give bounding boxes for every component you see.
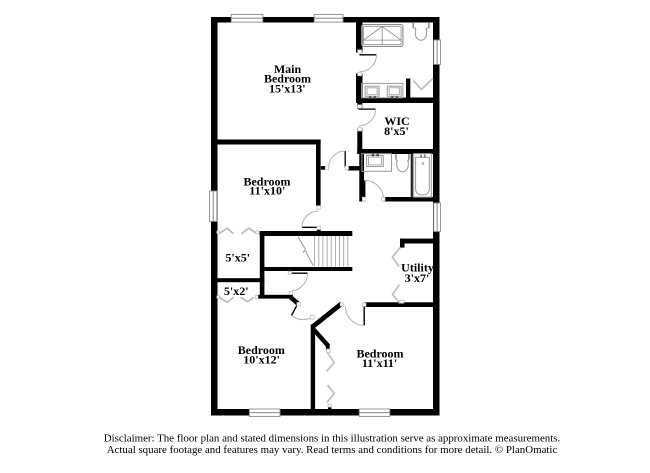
svg-text:10'x12': 10'x12' [243,353,280,367]
svg-text:3'x7': 3'x7' [405,271,430,285]
svg-text:5'x5': 5'x5' [225,250,250,264]
svg-text:Actual square footage and feat: Actual square footage and features may v… [107,444,558,456]
svg-text:Disclaimer: The floor plan and: Disclaimer: The floor plan and stated di… [104,432,561,444]
svg-text:5'x2': 5'x2' [224,284,249,298]
svg-text:15'x13': 15'x13' [269,82,306,96]
svg-text:11'x10': 11'x10' [249,184,285,198]
svg-text:11'x11': 11'x11' [362,356,397,370]
svg-text:8'x5': 8'x5' [384,124,409,138]
